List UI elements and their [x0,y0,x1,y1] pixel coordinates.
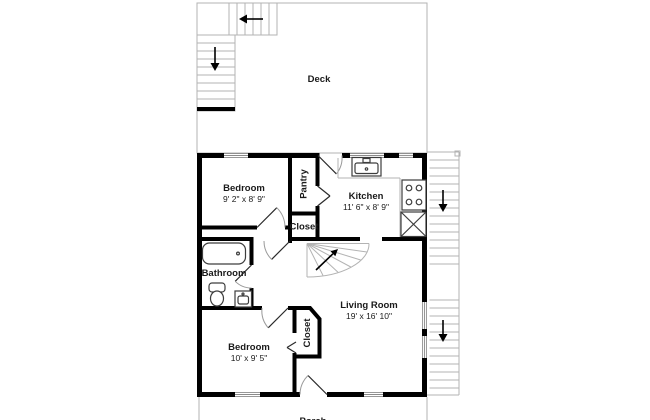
stove [402,180,426,210]
window [423,302,427,329]
bedroom-lower-label: Bedroom [228,342,270,353]
door-swing [257,208,285,228]
pantry-door [318,186,331,206]
kitchen-label: Kitchen [349,191,384,202]
closet-lower-label: Closet [302,318,313,348]
window [224,154,248,158]
room-closet-upper: Closet [289,222,319,233]
floor-plan-canvas: Deck [0,0,650,420]
bathroom-label: Bathroom [202,268,247,279]
porch-label: Porch [300,416,327,420]
arrow-down-icon [439,190,448,212]
toilet [209,283,225,306]
exterior-stairs [427,151,460,395]
winder-stairs [307,244,369,278]
deck-label: Deck [308,74,331,85]
deck-stairs [197,3,277,111]
room-living: Living Room 19' x 16' 10" [340,300,398,321]
window [235,393,260,397]
porch: Porch [199,397,427,420]
window [350,154,384,158]
bathtub [203,243,246,264]
bathroom-sink [235,291,252,307]
room-bathroom: Bathroom [202,268,247,279]
arrow-up-right-icon [316,249,338,270]
kitchen-dims: 11' 6" x 8' 9" [343,202,389,212]
arrow-down-icon [439,320,448,342]
bedroom-upper-dims: 9' 2" x 8' 9" [223,194,265,204]
room-kitchen: Kitchen 11' 6" x 8' 9" [343,191,389,212]
refrigerator [401,212,426,237]
bedroom-lower-dims: 10' x 9' 5" [231,353,268,363]
bedroom-upper-label: Bedroom [223,183,265,194]
pantry-label: Pantry [299,169,310,199]
living-room-label: Living Room [340,300,398,311]
closet-upper-label: Closet [289,222,319,233]
room-closet-lower: Closet [302,318,313,348]
window [399,154,413,158]
floor-plan-page: Deck [0,0,650,420]
window [423,336,427,358]
kitchen-sink [352,158,381,177]
deck: Deck [197,3,427,153]
closet-door [287,342,296,353]
window [364,393,383,397]
room-pantry: Pantry [299,169,310,199]
living-room-dims: 19' x 16' 10" [346,311,392,321]
door-swing [264,241,290,259]
room-bedroom-lower: Bedroom 10' x 9' 5" [228,342,270,363]
room-bedroom-upper: Bedroom 9' 2" x 8' 9" [223,183,265,204]
arrow-left-icon [239,15,263,24]
door-swing [300,376,327,395]
door-swing [262,308,288,328]
